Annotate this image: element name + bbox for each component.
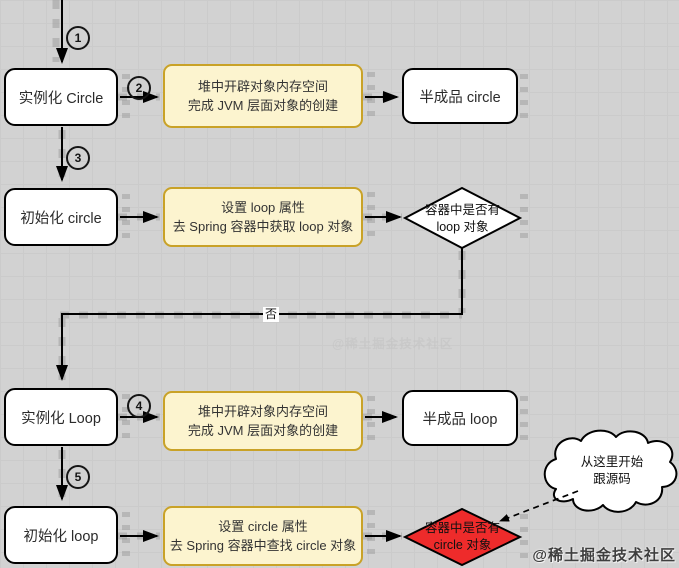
- step-marker-4: 4: [127, 394, 151, 418]
- node-instantiate-circle-label: 实例化 Circle: [19, 87, 104, 108]
- step-marker-5-num: 5: [75, 470, 82, 484]
- node-set-circle-line2: 去 Spring 容器中查找 circle 对象: [170, 536, 356, 556]
- decision-loop-line1: 容器中是否有: [425, 202, 500, 219]
- node-edge-dashes: [126, 72, 524, 564]
- node-half-product-loop: 半成品 loop: [402, 390, 518, 446]
- step-marker-4-num: 4: [136, 399, 143, 413]
- flowchart-canvas: 实例化 Circle 堆中开辟对象内存空间 完成 JVM 层面对象的创建 半成品…: [0, 0, 679, 568]
- edge-decision-no-to-instantiate-loop: [62, 248, 462, 379]
- step-marker-5: 5: [66, 465, 90, 489]
- node-heap-create-2-line2: 完成 JVM 层面对象的创建: [188, 421, 338, 441]
- cloud-note-label: 从这里开始 跟源码: [558, 450, 666, 492]
- node-init-loop-label: 初始化 loop: [24, 525, 99, 546]
- edge-label-no: 否: [263, 307, 279, 322]
- node-heap-create-2-line1: 堆中开辟对象内存空间: [198, 402, 328, 422]
- node-heap-create-1: 堆中开辟对象内存空间 完成 JVM 层面对象的创建: [163, 64, 363, 128]
- node-instantiate-circle: 实例化 Circle: [4, 68, 118, 126]
- cloud-note-line1: 从这里开始: [581, 454, 644, 472]
- watermark-faint: @稀土掘金技术社区: [332, 333, 472, 352]
- step-marker-3-num: 3: [75, 151, 82, 165]
- step-marker-2-num: 2: [136, 81, 143, 95]
- step-marker-2: 2: [127, 76, 151, 100]
- node-set-circle-line1: 设置 circle 属性: [218, 517, 308, 537]
- node-heap-create-2: 堆中开辟对象内存空间 完成 JVM 层面对象的创建: [163, 391, 363, 451]
- decision-circle-label: 容器中是否有 circle 对象: [405, 515, 520, 559]
- node-instantiate-loop: 实例化 Loop: [4, 388, 118, 446]
- node-set-loop-line2: 去 Spring 容器中获取 loop 对象: [173, 217, 354, 237]
- node-heap-create-1-line1: 堆中开辟对象内存空间: [198, 77, 328, 97]
- step-marker-3: 3: [66, 146, 90, 170]
- node-half-product-circle: 半成品 circle: [402, 68, 518, 124]
- cloud-note-line2: 跟源码: [593, 471, 631, 489]
- decision-circle-line1: 容器中是否有: [425, 520, 500, 537]
- node-init-circle-label: 初始化 circle: [20, 207, 101, 228]
- node-instantiate-loop-label: 实例化 Loop: [21, 407, 101, 428]
- node-set-circle: 设置 circle 属性 去 Spring 容器中查找 circle 对象: [163, 506, 363, 566]
- step-marker-1: 1: [66, 26, 90, 50]
- node-half-product-circle-label: 半成品 circle: [419, 86, 500, 107]
- node-set-loop: 设置 loop 属性 去 Spring 容器中获取 loop 对象: [163, 187, 363, 247]
- watermark: @稀土掘金技术社区: [532, 544, 676, 565]
- node-init-loop: 初始化 loop: [4, 506, 118, 564]
- node-heap-create-1-line2: 完成 JVM 层面对象的创建: [188, 96, 338, 116]
- decision-loop-label: 容器中是否有 loop 对象: [405, 196, 520, 241]
- step-marker-1-num: 1: [75, 31, 82, 45]
- decision-loop-line2: loop 对象: [436, 219, 488, 236]
- node-init-circle: 初始化 circle: [4, 188, 118, 246]
- node-set-loop-line1: 设置 loop 属性: [221, 198, 305, 218]
- decision-circle-line2: circle 对象: [434, 537, 492, 554]
- node-half-product-loop-label: 半成品 loop: [423, 408, 498, 429]
